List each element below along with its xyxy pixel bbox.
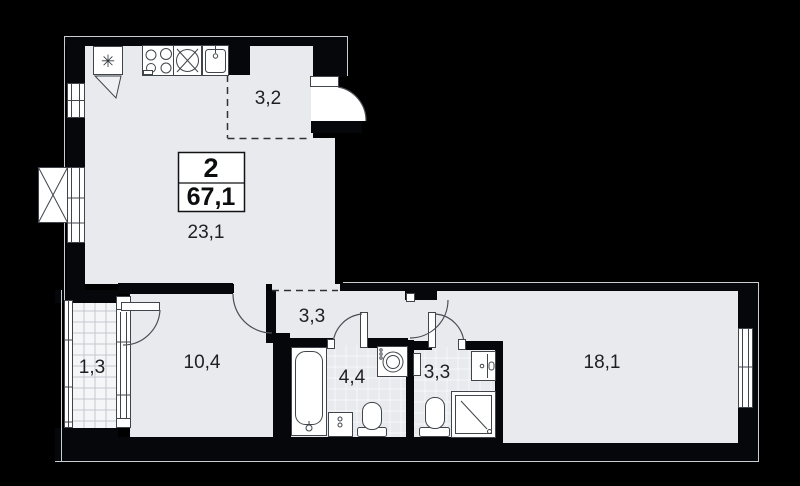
small-room-area-label: 10,4 xyxy=(184,352,221,373)
total-area-label: 67,1 xyxy=(187,183,236,211)
wall-left-2 xyxy=(67,118,85,167)
window-bedroom xyxy=(739,329,754,408)
balcony-door-leaf xyxy=(122,303,160,311)
wall-left-1 xyxy=(67,46,85,83)
floors xyxy=(73,46,738,443)
stove-icon xyxy=(143,46,174,76)
entry-door xyxy=(311,77,367,122)
wall-bedroom-right-1 xyxy=(738,290,759,328)
wall-top xyxy=(65,37,330,46)
bathtub-icon xyxy=(292,348,327,436)
corridor-area-label: 3,3 xyxy=(299,306,325,327)
wc-door-leaf xyxy=(429,313,436,348)
wall-below-entry-door xyxy=(311,121,362,133)
wall-living-bottom xyxy=(118,283,233,294)
entry-door-leaf xyxy=(311,77,339,87)
rooms-count-label: 2 xyxy=(203,153,218,183)
wall-wing-top xyxy=(340,283,760,291)
fridge-glyph: ✳ xyxy=(101,52,115,72)
wall-bedroom-right-2 xyxy=(738,408,759,443)
wc-area-label: 3,3 xyxy=(424,362,450,383)
wc-door-jamb xyxy=(459,340,466,350)
bathroom-area-label: 4,4 xyxy=(339,367,366,388)
floor-plan: ✳ xyxy=(0,0,800,486)
towel-rail-icon xyxy=(414,354,421,376)
floor-plan-canvas: ✳ xyxy=(0,0,800,486)
balcony-area-label: 1,3 xyxy=(79,357,105,378)
balcony-door-window xyxy=(117,297,131,428)
wall-bath-bottom xyxy=(291,437,503,461)
washbasin-icon xyxy=(203,46,229,76)
doorway-floor-room xyxy=(234,283,266,294)
window-kitchen-large xyxy=(68,168,85,243)
entry-hall-area-label: 3,2 xyxy=(255,88,281,109)
window-kitchen-small xyxy=(68,84,85,118)
kitchen-sink-icon xyxy=(174,46,202,76)
bathroom-door-leaf xyxy=(361,313,368,348)
wall-entry-notch xyxy=(228,37,250,75)
bedroom-area-label: 18,1 xyxy=(584,352,621,373)
entry-door-swing-area xyxy=(311,87,366,121)
vanity-cabinet-icon xyxy=(329,413,353,437)
wall-bedroom-bottom xyxy=(503,443,759,461)
washing-machine-icon xyxy=(378,347,408,377)
wall-room-bottom xyxy=(62,437,291,461)
wall-bath-top-left xyxy=(276,338,333,348)
wc-basin-icon xyxy=(472,352,496,381)
bathroom-door-jamb xyxy=(328,340,335,349)
wall-entry-right xyxy=(313,37,347,77)
info-box: 2 67,1 xyxy=(179,153,245,212)
shower-icon xyxy=(452,392,496,438)
wall-wc-bedroom xyxy=(495,350,503,443)
wall-wc-top-right xyxy=(465,341,503,350)
kitchen-living-area-label: 23,1 xyxy=(188,222,225,243)
ac-basket xyxy=(39,168,68,223)
wall-room-bath xyxy=(273,333,290,443)
balcony-glazing xyxy=(65,301,73,428)
bedroom-door-hinge xyxy=(407,294,415,302)
